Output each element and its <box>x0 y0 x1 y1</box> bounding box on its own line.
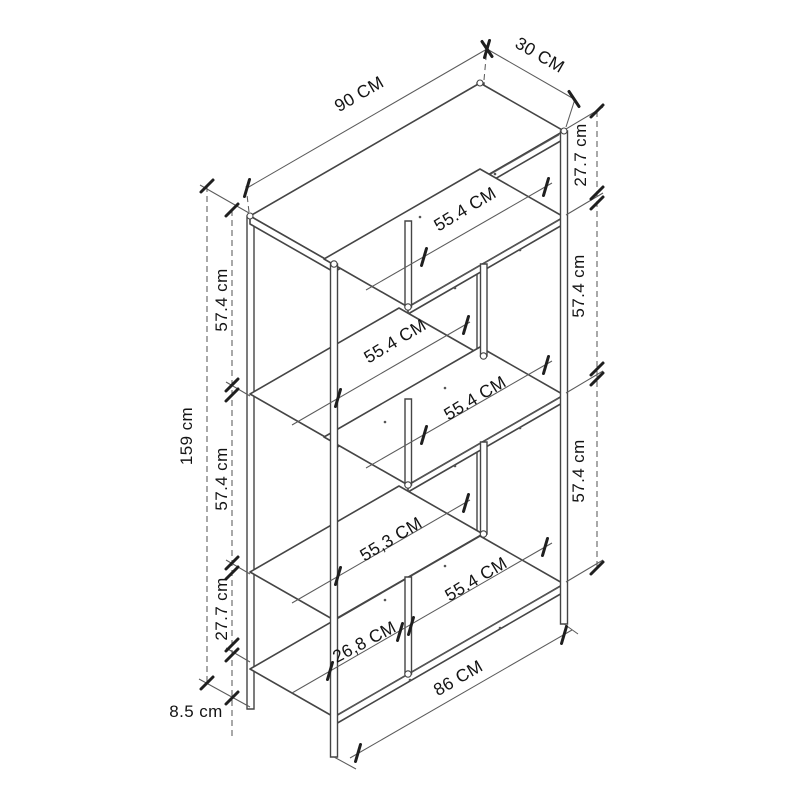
label-right-span-lower: 57.4 cm <box>569 439 588 502</box>
label-top-width: 90 CM <box>331 72 387 116</box>
label-right-top-gap: 27.7 cm <box>571 123 590 186</box>
bookshelf-dimension-diagram-page: 90 CM 30 CM 27.7 cm 57.4 cm 57.4 cm 159 … <box>0 0 800 800</box>
label-left-span-upper: 57.4 cm <box>212 268 231 331</box>
label-left-span-middle: 57.4 cm <box>212 447 231 510</box>
label-left-base-height: 8.5 cm <box>169 702 222 721</box>
label-right-span-upper: 57.4 cm <box>569 254 588 317</box>
bookshelf-dimension-diagram: 90 CM 30 CM 27.7 cm 57.4 cm 57.4 cm 159 … <box>0 0 800 800</box>
label-left-total-height: 159 cm <box>177 407 196 465</box>
label-left-span-lower: 27.7 cm <box>212 577 231 640</box>
label-top-depth: 30 CM <box>512 33 568 77</box>
